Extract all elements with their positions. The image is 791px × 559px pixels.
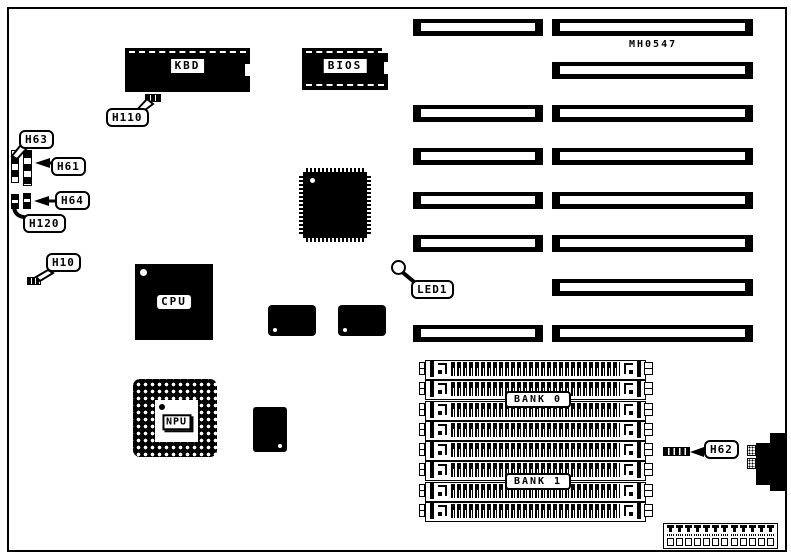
expansion-slot-left-5: [413, 235, 543, 252]
header-pin: [749, 525, 756, 532]
led1-label: LED1: [411, 280, 454, 299]
h120-label: H120: [23, 214, 66, 233]
bios-chip-notch: [384, 62, 388, 74]
header-pin: [740, 525, 747, 532]
qfp-pins-top: [306, 168, 364, 172]
header-hole: [712, 538, 719, 546]
connector-h62: [663, 447, 690, 456]
din-connector-tab-1: [747, 445, 756, 456]
smd-chip-3-dot: [278, 444, 282, 448]
smd-chip-1: [268, 305, 316, 336]
header-pin: [731, 525, 738, 532]
smd-chip-3: [253, 407, 287, 452]
connector-h110: [145, 94, 161, 102]
jumper-strip-h63: [11, 150, 19, 183]
expansion-slot-right-8: [552, 325, 753, 342]
header-pin: [721, 525, 728, 532]
header-hole: [767, 538, 774, 546]
h61-label: H61: [51, 157, 86, 176]
bios-chip: BIOS: [302, 48, 388, 90]
din-connector-shroud: [756, 443, 772, 485]
npu-core: NPU: [155, 400, 198, 442]
part-number: MH0547: [629, 39, 677, 50]
npu-chip-label: NPU: [162, 414, 191, 430]
header-pad: [740, 534, 747, 536]
simm-socket: [419, 421, 653, 439]
bios-chip-label: BIOS: [324, 59, 367, 73]
cpu-chip: CPU: [135, 264, 213, 340]
header-pad: [685, 534, 692, 536]
header-hole: [749, 538, 756, 546]
led1-indicator: [391, 260, 406, 275]
header-pad: [749, 534, 756, 536]
smd-chip-1-dot: [273, 328, 277, 332]
cpu-pin1-dot: [140, 269, 147, 276]
header-pad: [758, 534, 765, 536]
bank0-label: BANK 0: [505, 391, 571, 408]
h62-label: H62: [704, 440, 739, 459]
jumper-h64: [23, 193, 31, 209]
header-pin: [685, 525, 692, 532]
expansion-slot-right-6: [552, 235, 753, 252]
expansion-slot-right-3: [552, 105, 753, 122]
header-hole: [667, 538, 674, 546]
jumper-strip-h61: [23, 150, 32, 186]
qfp-pins-right: [367, 176, 371, 234]
din-connector-body: [770, 433, 787, 491]
header-hole: [676, 538, 683, 546]
kbd-chip-notch: [245, 64, 250, 76]
expansion-slot-left-4: [413, 192, 543, 209]
header-hole: [758, 538, 765, 546]
bank1-label: BANK 1: [505, 473, 571, 490]
header-pin: [703, 525, 710, 532]
header-pad: [712, 534, 719, 536]
bios-chip-dash-bottom: [306, 84, 384, 86]
kbd-chip-label: KBD: [171, 59, 205, 73]
simm-socket: [419, 360, 653, 378]
expansion-slot-left-1: [413, 19, 543, 36]
h64-label: H64: [55, 191, 90, 210]
simm-socket-array: [419, 360, 653, 520]
smd-chip-2-dot: [343, 328, 347, 332]
expansion-slot-left-2: [413, 105, 543, 122]
h110-label: H110: [106, 108, 149, 127]
qfp-pins-bottom: [306, 238, 364, 242]
expansion-slot-left-6: [413, 325, 543, 342]
kbd-chip: KBD: [125, 48, 250, 92]
bottom-pin-header: [663, 523, 778, 549]
header-pin: [667, 525, 674, 532]
qfp-chip: [303, 172, 367, 238]
expansion-slot-right-4: [552, 148, 753, 165]
header-pad: [767, 534, 774, 536]
header-hole: [685, 538, 692, 546]
cpu-chip-label: CPU: [157, 295, 191, 309]
jumper-h120: [11, 194, 19, 209]
connector-h10: [27, 277, 41, 285]
header-pad: [667, 534, 674, 536]
qfp-pins-left: [299, 176, 303, 234]
header-pin: [767, 525, 774, 532]
npu-chip: NPU: [133, 379, 217, 457]
kbd-chip-dash: [129, 51, 246, 53]
header-pad: [694, 534, 701, 536]
qfp-pin1-dot: [310, 178, 315, 183]
header-pad: [721, 534, 728, 536]
bios-chip-dash-top: [306, 51, 384, 53]
header-hole: [731, 538, 738, 546]
din-connector-tab-2: [747, 458, 756, 469]
header-pad: [676, 534, 683, 536]
smd-chip-2: [338, 305, 386, 336]
header-pin: [694, 525, 701, 532]
expansion-slot-right-5: [552, 192, 753, 209]
expansion-slot-left-3: [413, 148, 543, 165]
header-hole: [694, 538, 701, 546]
expansion-slot-right-7: [552, 279, 753, 296]
npu-pin1-dot: [159, 404, 165, 410]
header-hole: [703, 538, 710, 546]
simm-socket: [419, 502, 653, 520]
h10-label: H10: [46, 253, 81, 272]
header-pad: [731, 534, 738, 536]
expansion-slot-right-2: [552, 62, 753, 79]
header-pad: [703, 534, 710, 536]
header-pin: [758, 525, 765, 532]
expansion-slot-right-1: [552, 19, 753, 36]
motherboard-diagram: MH0547 KBD BIOS CPU NPU: [0, 0, 791, 559]
simm-socket: [419, 441, 653, 459]
h63-label: H63: [19, 130, 54, 149]
header-pin: [676, 525, 683, 532]
header-hole: [721, 538, 728, 546]
bios-chip-corner: [382, 48, 388, 53]
header-pin: [712, 525, 719, 532]
header-hole: [740, 538, 747, 546]
